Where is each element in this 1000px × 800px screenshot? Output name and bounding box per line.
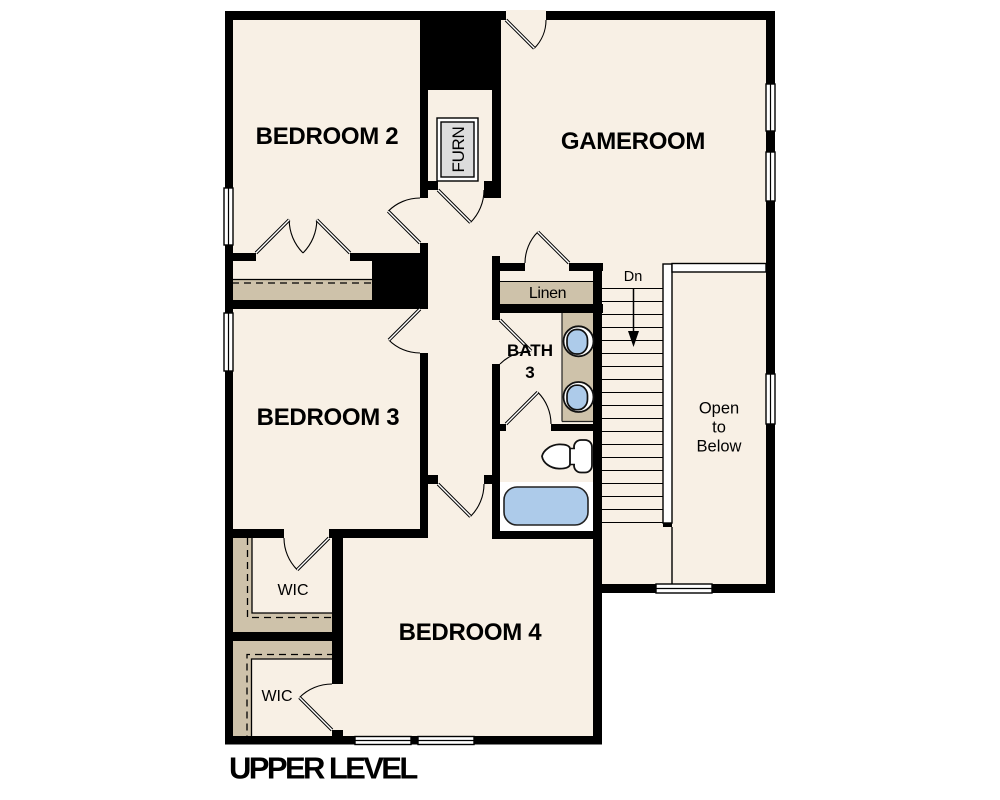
svg-text:UPPER LEVEL: UPPER LEVEL xyxy=(229,751,417,786)
svg-text:BEDROOM 2: BEDROOM 2 xyxy=(256,123,399,150)
svg-text:Linen: Linen xyxy=(529,285,566,302)
svg-text:FURN: FURN xyxy=(449,126,468,172)
svg-text:to: to xyxy=(712,419,726,437)
svg-text:WIC: WIC xyxy=(277,582,308,599)
svg-text:3: 3 xyxy=(525,363,534,382)
svg-text:BEDROOM 4: BEDROOM 4 xyxy=(399,619,543,646)
svg-text:Below: Below xyxy=(697,438,742,456)
svg-text:BEDROOM 3: BEDROOM 3 xyxy=(257,404,400,431)
svg-text:GAMEROOM: GAMEROOM xyxy=(561,128,705,155)
svg-text:Dn: Dn xyxy=(624,269,643,285)
svg-text:Open: Open xyxy=(699,400,739,418)
svg-text:WIC: WIC xyxy=(261,688,292,705)
svg-text:BATH: BATH xyxy=(507,341,553,360)
